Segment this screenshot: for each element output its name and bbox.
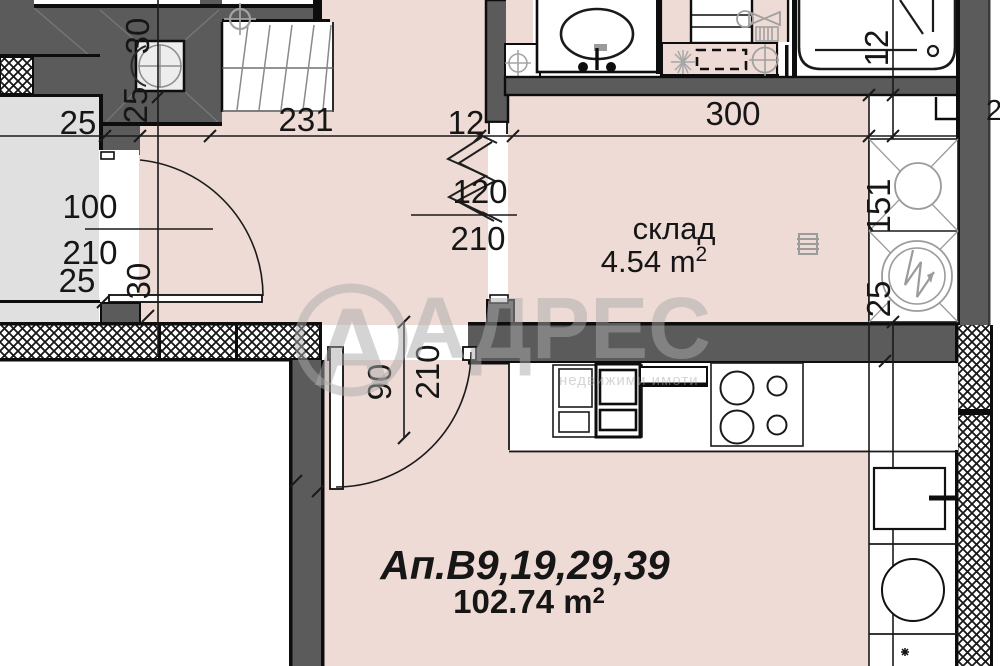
svg-text:АДРЕС: АДРЕС bbox=[404, 280, 711, 377]
svg-text:12: 12 bbox=[448, 104, 485, 141]
svg-text:300: 300 bbox=[705, 95, 760, 132]
svg-text:30: 30 bbox=[120, 263, 157, 300]
svg-text:12: 12 bbox=[858, 30, 895, 67]
svg-text:25: 25 bbox=[60, 104, 97, 141]
svg-text:120: 120 bbox=[452, 173, 507, 210]
svg-text:25: 25 bbox=[59, 262, 96, 299]
svg-text:30: 30 bbox=[119, 18, 156, 55]
svg-text:склад: склад bbox=[633, 211, 716, 246]
svg-text:100: 100 bbox=[62, 188, 117, 225]
svg-text:недвижими имоти: недвижими имоти bbox=[559, 372, 699, 389]
svg-text:102.74 m2: 102.74 m2 bbox=[453, 583, 605, 620]
svg-text:25: 25 bbox=[860, 281, 897, 318]
svg-text:25: 25 bbox=[986, 95, 1000, 127]
svg-text:231: 231 bbox=[278, 101, 333, 138]
svg-text:151: 151 bbox=[860, 178, 897, 233]
svg-text:25: 25 bbox=[117, 87, 154, 124]
svg-text:4.54 m2: 4.54 m2 bbox=[601, 243, 707, 279]
svg-text:А: А bbox=[312, 286, 391, 409]
svg-text:210: 210 bbox=[450, 220, 505, 257]
svg-text:Ап.В9,19,29,39: Ап.В9,19,29,39 bbox=[379, 542, 670, 588]
